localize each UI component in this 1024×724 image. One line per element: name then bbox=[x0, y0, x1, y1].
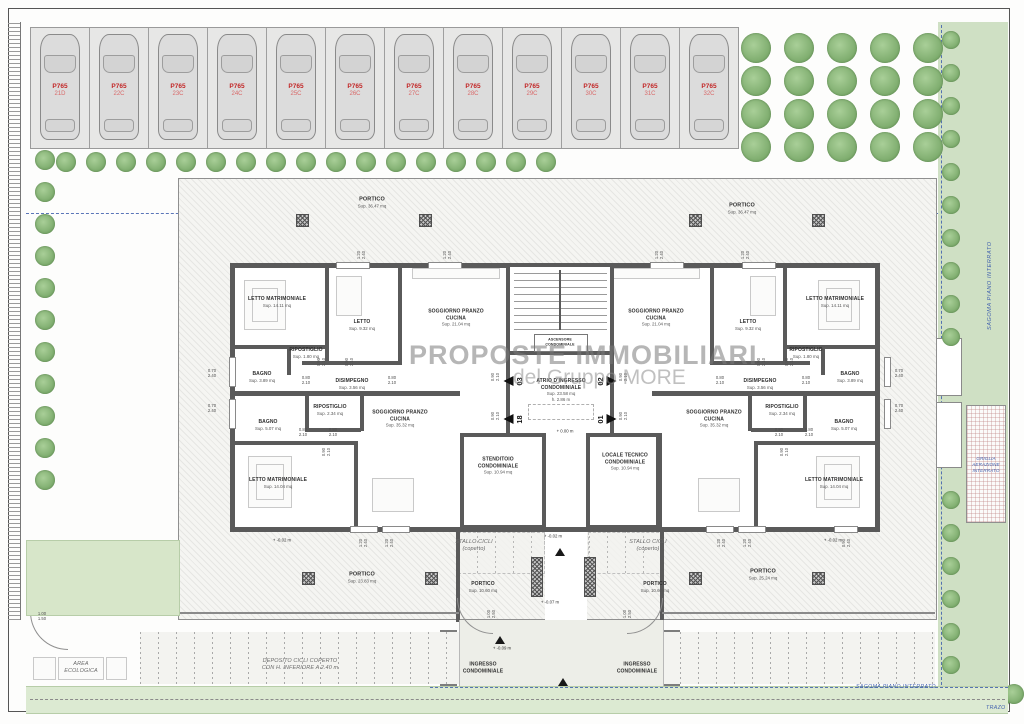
canopy-column bbox=[584, 557, 596, 597]
parking-stall: P76531C bbox=[621, 28, 680, 148]
dimension-label: 1.20 2.40 bbox=[443, 251, 453, 259]
dimension-label: 0.90 2.10 bbox=[491, 412, 501, 420]
pillar bbox=[419, 214, 432, 227]
tree-icon bbox=[35, 214, 55, 234]
parking-stall-label: P76529C bbox=[503, 83, 561, 98]
tree-icon bbox=[942, 656, 960, 674]
dimension-label: 0.80 2.10 bbox=[802, 376, 810, 386]
dimension-label: 0.70 2.40 bbox=[208, 404, 216, 414]
wall bbox=[230, 263, 235, 532]
room-label: RIPOSTIGLIOSup. 2.34 mq bbox=[313, 404, 346, 416]
green-patch-left bbox=[26, 540, 180, 616]
tree-icon bbox=[942, 196, 960, 214]
tree-icon bbox=[416, 152, 436, 172]
parking-area: P76521DP76522CP76523CP76524CP76525CP7652… bbox=[30, 27, 739, 149]
griglia-label: GRIGLIA AERAZIONE INTERRATO bbox=[972, 456, 999, 474]
furniture bbox=[750, 276, 776, 316]
tree-icon bbox=[741, 99, 771, 129]
room-label: SOGGIORNO PRANZO CUCINASup. 35.32 mq bbox=[686, 410, 742, 429]
stair-divider bbox=[559, 270, 561, 330]
waste-bin-box bbox=[106, 657, 127, 680]
level-mark: 0.00 m bbox=[557, 429, 574, 434]
dimension-label: 1.20 2.40 bbox=[741, 251, 751, 259]
room-label: PORTICOSup. 10.60 mq bbox=[469, 581, 498, 593]
parking-stall: P76532C bbox=[680, 28, 738, 148]
room-label: DISIMPEGNOSup. 3.56 mq bbox=[744, 378, 777, 390]
furniture bbox=[612, 268, 700, 279]
tree-icon bbox=[827, 33, 857, 63]
tree-icon bbox=[942, 97, 960, 115]
room-walls bbox=[460, 433, 546, 529]
furniture bbox=[412, 268, 500, 279]
parking-stall-label: P76525C bbox=[267, 83, 325, 98]
entrance-arrow-icon bbox=[607, 414, 617, 424]
parking-stall: P76530C bbox=[562, 28, 621, 148]
boundary-wall-hatch bbox=[8, 22, 21, 620]
tree-icon bbox=[266, 152, 286, 172]
tree-icon bbox=[296, 152, 316, 172]
wall bbox=[754, 443, 758, 532]
parking-stall-label: P76526C bbox=[326, 83, 384, 98]
window bbox=[382, 526, 410, 533]
room-label: RIPOSTIGLIOSup. 2.34 mq bbox=[765, 404, 798, 416]
dimension-label: 0.90 2.10 bbox=[317, 358, 327, 366]
furniture bbox=[698, 478, 740, 512]
parking-stall-label: P76530C bbox=[562, 83, 620, 98]
tree-icon bbox=[870, 33, 900, 63]
room-label: LOCALE TECNICO CONDOMINIALESup. 10.94 mq bbox=[602, 453, 648, 472]
dimension-label: 0.90 2.10 bbox=[785, 358, 795, 366]
tree-icon bbox=[386, 152, 406, 172]
room-label: LETTO MATRIMONIALESup. 14.04 mq bbox=[249, 477, 307, 489]
room-label: DEPOSITO CICLI COPERTO CON H. INFERIORE … bbox=[262, 658, 338, 672]
tree-icon bbox=[741, 132, 771, 162]
tree-icon bbox=[35, 310, 55, 330]
room-label: BAGNOSup. 3.89 mq bbox=[249, 371, 275, 383]
pillar bbox=[689, 214, 702, 227]
room-label: DISIMPEGNOSup. 3.56 mq bbox=[336, 378, 369, 390]
level-mark: -0.07 m bbox=[541, 600, 559, 605]
dimension-label: 1.00 1.50 bbox=[38, 612, 46, 622]
dimension-label: 0.80 2.10 bbox=[716, 376, 724, 386]
tree-icon bbox=[446, 152, 466, 172]
dimension-label: 1.20 2.40 bbox=[357, 251, 367, 259]
room-label: AREA ECOLOGICA bbox=[64, 661, 98, 675]
tree-icon bbox=[176, 152, 196, 172]
window bbox=[742, 262, 776, 269]
wall bbox=[232, 441, 358, 445]
trazo-label: TRAZO bbox=[986, 705, 1006, 711]
entrance-marker: 01 bbox=[596, 414, 617, 424]
furniture bbox=[372, 478, 414, 512]
tree-icon bbox=[536, 152, 556, 172]
dimension-label: 0.90 2.10 bbox=[345, 358, 355, 366]
dimension-label: 1.20 2.40 bbox=[385, 539, 395, 547]
room-label: BAGNOSup. 5.07 mq bbox=[831, 419, 857, 431]
dimension-label: 0.70 2.40 bbox=[895, 369, 903, 379]
pillar bbox=[812, 572, 825, 585]
parking-stall-label: P76528C bbox=[444, 83, 502, 98]
parking-stall: P76524C bbox=[208, 28, 267, 148]
tree-icon bbox=[942, 229, 960, 247]
room-label: SOGGIORNO PRANZO CUCINASup. 35.32 mq bbox=[372, 410, 428, 429]
furniture bbox=[336, 276, 362, 316]
room-label: LETTO MATRIMONIALESup. 14.04 mq bbox=[805, 477, 863, 489]
parking-stall-label: P76521D bbox=[31, 83, 89, 98]
pillar bbox=[296, 214, 309, 227]
entrance-number: 01 bbox=[596, 414, 605, 424]
wall bbox=[754, 441, 880, 445]
tree-icon bbox=[827, 132, 857, 162]
room-label: SOGGIORNO PRANZO CUCINASup. 21.04 mq bbox=[428, 309, 484, 328]
right-edge-opening bbox=[936, 338, 962, 396]
tree-icon bbox=[35, 438, 55, 458]
tree-icon bbox=[870, 99, 900, 129]
tree-icon bbox=[35, 246, 55, 266]
sagoma-right-label: SAGOMA PIANO INTERRATO bbox=[987, 241, 993, 330]
parking-stall-label: P76532C bbox=[680, 83, 738, 98]
tree-icon bbox=[827, 66, 857, 96]
bike-deposit-right bbox=[662, 632, 935, 684]
wall bbox=[803, 391, 807, 432]
tree-icon bbox=[942, 295, 960, 313]
tree-icon bbox=[35, 342, 55, 362]
wall bbox=[232, 391, 460, 396]
tree-icon bbox=[942, 524, 960, 542]
dimension-label: 0.70 2.40 bbox=[208, 369, 216, 379]
tree-icon bbox=[942, 64, 960, 82]
level-mark: -0.02 m bbox=[273, 538, 291, 543]
tree-icon bbox=[870, 132, 900, 162]
entrance-arrow-icon bbox=[504, 414, 514, 424]
tree-icon bbox=[913, 33, 943, 63]
dimension-label: 1.20 2.40 bbox=[743, 539, 753, 547]
direction-arrow-icon bbox=[495, 636, 505, 644]
tree-icon bbox=[827, 99, 857, 129]
dimension-label: 0.90 2.10 bbox=[757, 358, 767, 366]
wall bbox=[398, 263, 402, 363]
tree-icon bbox=[784, 132, 814, 162]
window bbox=[229, 357, 236, 387]
dimension-label: 0.90 2.40 bbox=[842, 539, 852, 547]
parking-stall-label: P76531C bbox=[621, 83, 679, 98]
tree-icon bbox=[476, 152, 496, 172]
hedge-strip-bottom bbox=[26, 686, 1008, 714]
tree-icon bbox=[913, 66, 943, 96]
parking-stall: P76523C bbox=[149, 28, 208, 148]
dimension-label: 0.90 2.10 bbox=[619, 412, 629, 420]
entrance-arrow-icon bbox=[504, 376, 514, 386]
dimension-label: 0.80 2.10 bbox=[388, 376, 396, 386]
right-edge-opening bbox=[936, 402, 962, 468]
room-label: PORTICOSup. 36.47 mq bbox=[728, 203, 757, 216]
window bbox=[884, 399, 891, 429]
wall bbox=[875, 263, 880, 532]
room-label: LETTOSup. 9.32 mq bbox=[735, 319, 761, 331]
tree-icon bbox=[35, 150, 55, 170]
entrance-number: 18 bbox=[515, 414, 524, 424]
dimension-label: 0.80 2.10 bbox=[299, 428, 307, 438]
dimension-label: 0.80 2.10 bbox=[329, 428, 337, 438]
room-label: STENDITOIO CONDOMINIALESup. 10.94 mq bbox=[478, 457, 518, 476]
tree-icon bbox=[116, 152, 136, 172]
tree-icon bbox=[784, 99, 814, 129]
tree-icon bbox=[942, 557, 960, 575]
tree-icon bbox=[942, 130, 960, 148]
tree-icon bbox=[206, 152, 226, 172]
level-mark: -0.02 m bbox=[824, 538, 842, 543]
level-mark: -0.02 m bbox=[544, 534, 562, 539]
room-label: INGRESSO CONDOMINIALE bbox=[617, 662, 657, 675]
dimension-label: 1.20 2.40 bbox=[717, 539, 727, 547]
parking-stall: P76528C bbox=[444, 28, 503, 148]
direction-arrow-icon bbox=[555, 548, 565, 556]
room-label: PORTICOSup. 25.24 mq bbox=[749, 569, 778, 582]
dimension-label: 1.00 2.50 bbox=[487, 610, 497, 618]
window bbox=[229, 399, 236, 429]
pillar bbox=[302, 572, 315, 585]
tree-icon bbox=[942, 163, 960, 181]
floor-plan-sheet: GRIGLIA AERAZIONE INTERRATO SAGOMA PIANO… bbox=[0, 0, 1024, 724]
wall bbox=[354, 443, 358, 532]
tree-icon bbox=[35, 470, 55, 490]
room-label: PORTICOSup. 23.83 mq bbox=[348, 572, 377, 585]
pillar bbox=[689, 572, 702, 585]
dimension-label: 0.90 2.10 bbox=[322, 448, 332, 456]
window bbox=[738, 526, 766, 533]
tree-icon bbox=[35, 182, 55, 202]
tree-icon bbox=[741, 33, 771, 63]
dimension-label: 0.80 2.10 bbox=[302, 376, 310, 386]
room-label: STALLO CICLI (coperto) bbox=[455, 539, 492, 553]
tree-icon bbox=[784, 33, 814, 63]
window bbox=[336, 262, 370, 269]
parking-stall: P76525C bbox=[267, 28, 326, 148]
tree-icon bbox=[506, 152, 526, 172]
wall bbox=[305, 391, 309, 432]
parking-stall-label: P76523C bbox=[149, 83, 207, 98]
dimension-label: 0.90 2.10 bbox=[491, 373, 501, 381]
tree-icon bbox=[942, 262, 960, 280]
tree-icon bbox=[35, 406, 55, 426]
room-walls bbox=[586, 433, 662, 529]
wall bbox=[748, 391, 752, 431]
dimension-label: 0.90 2.10 bbox=[780, 448, 790, 456]
tree-icon bbox=[913, 99, 943, 129]
dimension-label: 0.80 2.10 bbox=[805, 428, 813, 438]
tree-icon bbox=[942, 623, 960, 641]
tree-icon bbox=[146, 152, 166, 172]
parking-stall: P76529C bbox=[503, 28, 562, 148]
parking-stall: P76526C bbox=[326, 28, 385, 148]
direction-arrow-icon bbox=[558, 678, 568, 686]
dimension-label: 0.70 2.40 bbox=[895, 404, 903, 414]
room-label: LETTO MATRIMONIALESup. 14.11 mq bbox=[248, 296, 306, 308]
tree-icon bbox=[913, 132, 943, 162]
hedge-dashed-line bbox=[30, 699, 1005, 700]
wall bbox=[360, 391, 364, 431]
window bbox=[834, 526, 858, 533]
room-label: LETTO MATRIMONIALESup. 14.11 mq bbox=[806, 296, 864, 308]
tree-icon bbox=[741, 66, 771, 96]
room-label: PORTICOSup. 36.47 mq bbox=[358, 197, 387, 210]
deposito-roof-line bbox=[662, 612, 935, 614]
tree-icon bbox=[35, 374, 55, 394]
tree-icon bbox=[942, 31, 960, 49]
parking-stall: P76521D bbox=[31, 28, 90, 148]
tree-icon bbox=[942, 590, 960, 608]
tree-icon bbox=[942, 328, 960, 346]
wall bbox=[230, 527, 880, 532]
room-label: SOGGIORNO PRANZO CUCINASup. 21.04 mq bbox=[628, 309, 684, 328]
room-label: PORTICOSup. 10.60 mq bbox=[641, 581, 670, 593]
window bbox=[884, 357, 891, 387]
room-label: LETTOSup. 9.32 mq bbox=[349, 319, 375, 331]
parking-stall-label: P76527C bbox=[385, 83, 443, 98]
tree-icon bbox=[35, 278, 55, 298]
entrance-marker: 18 bbox=[504, 414, 525, 424]
waste-bin-box bbox=[33, 657, 56, 680]
pillar bbox=[812, 214, 825, 227]
room-label: BAGNOSup. 5.07 mq bbox=[255, 419, 281, 431]
level-mark: -0.09 m bbox=[493, 646, 511, 651]
parking-stall-label: P76522C bbox=[90, 83, 148, 98]
pillar bbox=[425, 572, 438, 585]
watermark-subtitle: del Gruppo MORE bbox=[513, 366, 686, 390]
dimension-label: 1.20 2.40 bbox=[359, 539, 369, 547]
room-label: STALLO CICLI (coperto) bbox=[629, 539, 666, 553]
parking-stall-label: P76524C bbox=[208, 83, 266, 98]
tree-icon bbox=[236, 152, 256, 172]
tree-icon bbox=[56, 152, 76, 172]
sagoma-bottom-label: SAGOMA PIANO INTERRATO bbox=[856, 684, 936, 690]
dimension-label: 0.80 2.10 bbox=[775, 428, 783, 438]
tree-icon bbox=[326, 152, 346, 172]
tree-icon bbox=[870, 66, 900, 96]
tree-icon bbox=[784, 66, 814, 96]
tree-icon bbox=[86, 152, 106, 172]
entry-corridor bbox=[545, 530, 587, 622]
room-label: BAGNOSup. 3.89 mq bbox=[837, 371, 863, 383]
parking-stall: P76522C bbox=[90, 28, 149, 148]
atrium-dashed-zone bbox=[528, 404, 594, 420]
tree-icon bbox=[356, 152, 376, 172]
dimension-label: 1.20 2.40 bbox=[655, 251, 665, 259]
window bbox=[706, 526, 734, 533]
tree-icon bbox=[942, 491, 960, 509]
room-label: INGRESSO CONDOMINIALE bbox=[463, 662, 503, 675]
window bbox=[350, 526, 378, 533]
canopy-column bbox=[531, 557, 543, 597]
dimension-label: 1.00 2.50 bbox=[623, 610, 633, 618]
wall bbox=[652, 391, 880, 396]
parking-stall: P76527C bbox=[385, 28, 444, 148]
